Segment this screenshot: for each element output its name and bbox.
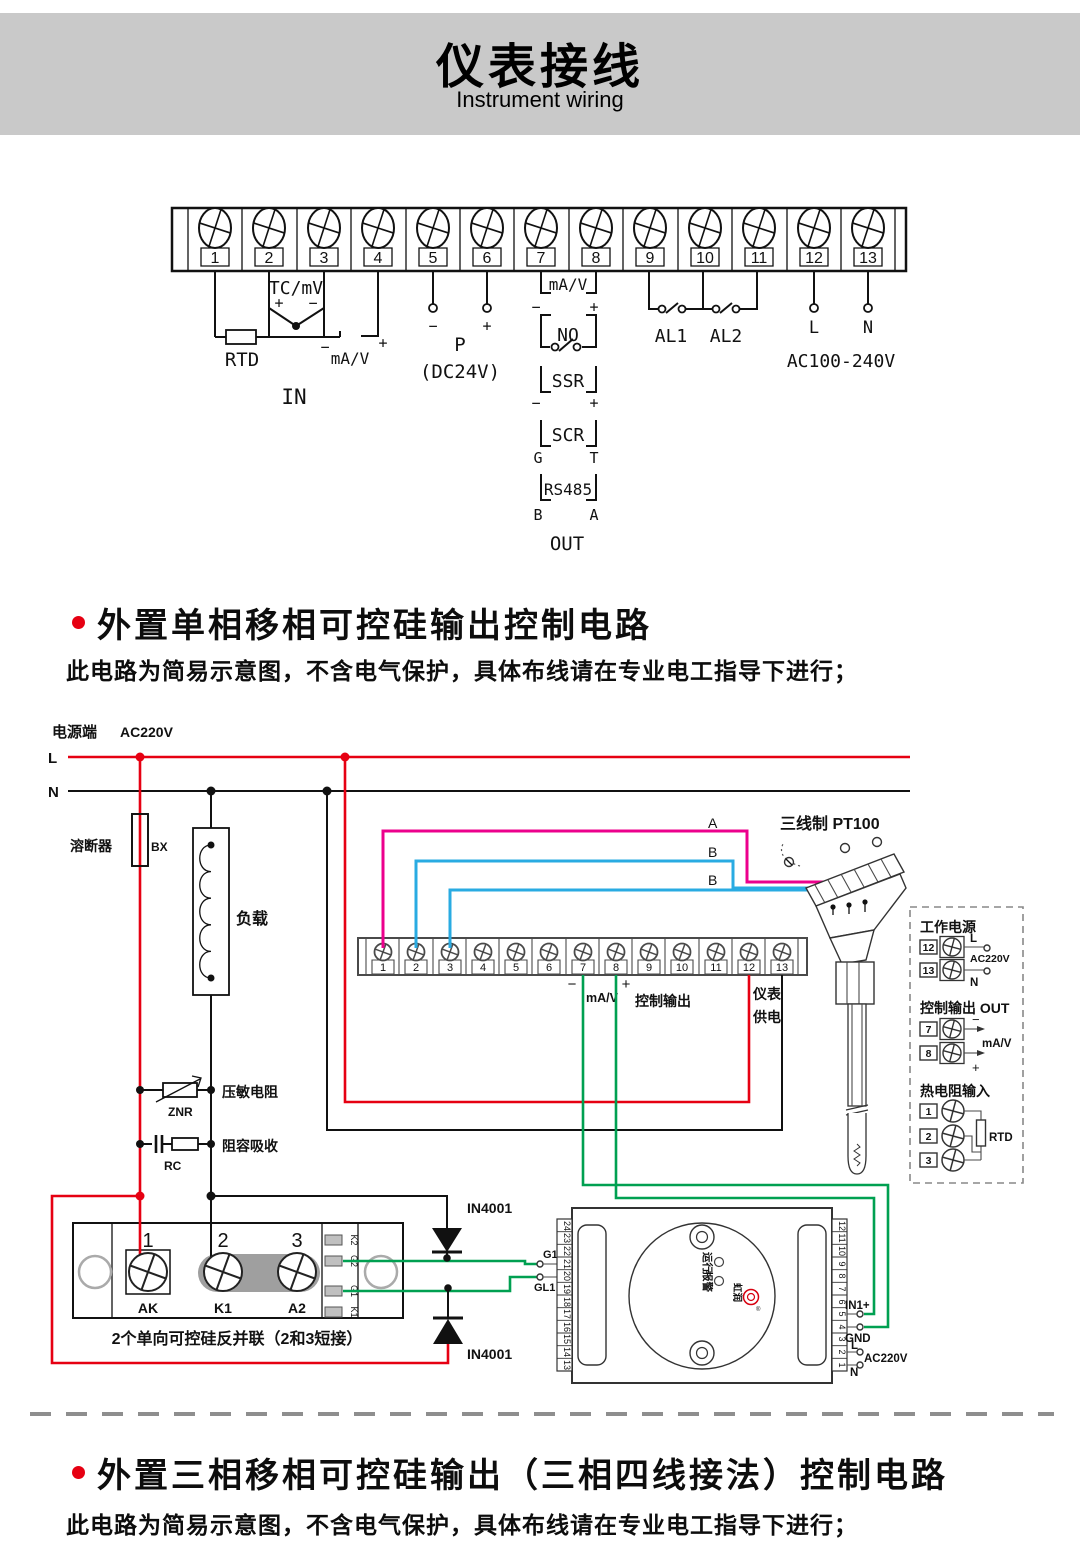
- panel-out-minus: −: [972, 1012, 980, 1027]
- panel-1: 1: [926, 1106, 932, 1118]
- terminal-number: 11: [751, 250, 768, 267]
- section2-note: 此电路为简易示意图，不含电气保护，具体布线请在专业电工指导下进行；: [66, 1506, 858, 1540]
- mid-terminal: 4: [480, 962, 486, 974]
- mav-in-label: mA/V: [331, 349, 370, 368]
- alarm-led-label: 报警: [701, 1271, 714, 1293]
- ac-range-label: AC100-240V: [787, 351, 896, 372]
- supply-label-2: 供电: [752, 1009, 781, 1025]
- out-plus: +: [589, 298, 598, 316]
- section1-title: 外置单相移相可控硅输出控制电路: [97, 598, 652, 647]
- panel-ac: AC220V: [970, 953, 1010, 965]
- fuse-code: BX: [151, 840, 168, 854]
- dc24v-label: (DC24V): [420, 361, 500, 383]
- mid-terminal: 8: [613, 962, 619, 974]
- module-n3: 3: [291, 1230, 302, 1252]
- tl: 15: [562, 1334, 572, 1344]
- bullet-icon: [72, 1466, 85, 1479]
- rtd-label: RTD: [225, 349, 259, 371]
- tr: 12: [837, 1221, 847, 1231]
- tr: 2: [837, 1349, 847, 1354]
- run-led: [715, 1258, 724, 1267]
- module-k1: K1: [214, 1300, 232, 1316]
- ssr-plus: +: [589, 394, 598, 412]
- panel-out-plus: +: [972, 1060, 980, 1075]
- fuse: 溶断器 BX: [70, 757, 168, 1196]
- tl: 19: [562, 1284, 572, 1294]
- mid-terminal: 3: [447, 962, 453, 974]
- terminal-number: 8: [592, 250, 601, 267]
- trigger-module: 24 23 22 21 20 19 18 17 16 15 14 13 12 1…: [557, 1208, 908, 1383]
- ctrl-mav: mA/V: [586, 991, 619, 1005]
- module-ak: AK: [138, 1300, 158, 1316]
- mav-out-label: mA/V: [549, 275, 588, 294]
- module-caption: 2个单向可控硅反并联（2和3短接）: [112, 1329, 363, 1348]
- no-label: NO: [557, 325, 579, 346]
- panel-8: 8: [926, 1048, 932, 1060]
- panel-out-title: 控制输出 OUT: [920, 1000, 1010, 1016]
- rs485-b: B: [533, 506, 542, 524]
- terminal-number: 13: [859, 250, 877, 267]
- mid-terminal: 5: [513, 962, 519, 974]
- rc-code: RC: [164, 1159, 182, 1173]
- alarm-relays: AL1 AL2: [649, 271, 757, 347]
- tr: 7: [837, 1286, 847, 1291]
- ctrl-minus: −: [568, 976, 577, 993]
- registered-mark: ®: [756, 1306, 761, 1313]
- panel-n: N: [970, 977, 978, 989]
- rc-label: 阻容吸收: [222, 1138, 279, 1154]
- terminal-number: 4: [374, 250, 383, 267]
- supply-label-1: 仪表: [752, 986, 782, 1002]
- section1-title-row: 外置单相移相可控硅输出控制电路: [72, 598, 652, 647]
- ssr-label: SSR: [552, 371, 585, 392]
- section-divider: [30, 1412, 1054, 1416]
- out-label: OUT: [550, 533, 584, 555]
- gl1-label: GL1: [534, 1282, 555, 1294]
- panel-power-title: 工作电源: [920, 919, 976, 935]
- mid-terminal: 2: [413, 962, 419, 974]
- tl: 18: [562, 1297, 572, 1307]
- g1-label: G1: [543, 1249, 558, 1261]
- in-label: IN: [281, 385, 306, 409]
- tab-k2: K2: [349, 1234, 359, 1245]
- ssr-minus: −: [531, 394, 540, 412]
- wire-a-label: A: [708, 815, 718, 831]
- mid-terminal: 10: [676, 962, 688, 974]
- rs485-a: A: [589, 506, 598, 524]
- mid-terminal: 1: [380, 962, 386, 974]
- mid-terminal: 13: [776, 962, 788, 974]
- in1-label: IN1+: [845, 1300, 870, 1312]
- power-side-label: 电源端: [52, 723, 97, 741]
- tl: 21: [562, 1259, 572, 1269]
- diode2-label: IN4001: [467, 1346, 512, 1362]
- tc-minus: −: [308, 294, 317, 312]
- section1-note: 此电路为简易示意图，不含电气保护，具体布线请在专业电工指导下进行；: [66, 652, 858, 686]
- scr-label: SCR: [552, 425, 585, 446]
- terminal-number: 5: [429, 250, 438, 267]
- mid-terminal: 7: [580, 962, 586, 974]
- power-rails: 电源端 AC220V L N: [48, 723, 910, 801]
- tl: 24: [562, 1221, 572, 1231]
- terminal-number: 2: [265, 250, 274, 267]
- tr: 9: [837, 1261, 847, 1266]
- header-banner: 仪表接线 Instrument wiring: [0, 13, 1080, 135]
- output-options: mA/V − + NO SSR − + SCR G T RS485 B A OU…: [531, 271, 598, 555]
- tl: 22: [562, 1246, 572, 1256]
- mains-input: L N AC100-240V: [787, 271, 896, 372]
- section2-title: 外置三相移相可控硅输出（三相四线接法）控制电路: [97, 1448, 948, 1497]
- p-minus: −: [428, 317, 437, 335]
- fuse-label: 溶断器: [70, 838, 113, 854]
- diode-bottom: IN4001: [433, 1284, 512, 1362]
- terminal-number: 7: [537, 250, 546, 267]
- panel-2: 2: [926, 1131, 932, 1143]
- tl: 20: [562, 1271, 572, 1281]
- tr: 11: [837, 1233, 847, 1242]
- trigger-n-label: N: [850, 1367, 858, 1379]
- panel-3: 3: [926, 1155, 932, 1167]
- page: 仪表接线 Instrument wiring 1 2: [0, 0, 1080, 1557]
- brand-name: 虹润: [731, 1283, 743, 1302]
- mid-terminal: 11: [710, 962, 721, 974]
- rs485-label: RS485: [544, 480, 592, 499]
- panel-13: 13: [923, 965, 935, 977]
- al2-label: AL2: [710, 326, 743, 347]
- pt100-sensor: 三线制 PT100: [780, 814, 906, 1174]
- terminal-number: 9: [646, 250, 655, 267]
- rc-snubber: 阻容吸收 RC: [136, 1135, 279, 1173]
- p-label: P: [454, 334, 465, 356]
- section2-title-row: 外置三相移相可控硅输出（三相四线接法）控制电路: [72, 1448, 948, 1497]
- panel-mav: mA/V: [982, 1038, 1012, 1050]
- module-n2: 2: [217, 1230, 228, 1252]
- tab-k1: K1: [349, 1306, 359, 1317]
- load-label: 负载: [236, 909, 268, 928]
- p-plus: +: [482, 317, 491, 335]
- trigger-ac-label: AC220V: [864, 1353, 908, 1365]
- tr: 8: [837, 1273, 847, 1278]
- tr: 10: [837, 1246, 847, 1256]
- pt100-wires: A B B: [383, 815, 864, 948]
- mid-terminal: 6: [546, 962, 552, 974]
- panel-l: L: [970, 933, 977, 945]
- varistor: 压敏电阻 ZNR: [136, 1076, 278, 1119]
- tl: 14: [562, 1347, 572, 1357]
- pt100-label: 三线制 PT100: [780, 814, 880, 833]
- scr-module: 1 2 3 AK K1 A2 K2 G2 G1 K1 2个单向可控硅反并联（2和…: [52, 1192, 448, 1364]
- varistor-label: 压敏电阻: [222, 1084, 278, 1100]
- mav-plus: +: [378, 334, 387, 352]
- panel-rtd-title: 热电阻输入: [920, 1083, 990, 1099]
- control-out-label: 控制输出: [635, 993, 691, 1009]
- tr: 1: [837, 1362, 847, 1367]
- diode1-label: IN4001: [467, 1200, 512, 1216]
- terminal-number: 10: [696, 250, 714, 267]
- wire-b2-label: B: [708, 872, 717, 888]
- diode-top: IN4001: [432, 1200, 512, 1262]
- alarm-led: [715, 1277, 724, 1286]
- tl: 17: [562, 1309, 572, 1319]
- tl: 13: [562, 1360, 572, 1370]
- ctrl-plus: +: [622, 976, 631, 993]
- terminal-number: 12: [805, 250, 823, 267]
- input-wiring: TC/mV + − RTD − mA/V + IN: [215, 271, 388, 409]
- terminal-strip-top: 1 2 3 4 5 6 7 8 9 10 11 12 13: [172, 204, 906, 271]
- terminal-number: 1: [211, 250, 220, 267]
- tr: 5: [837, 1311, 847, 1316]
- panel-rtd: RTD: [989, 1132, 1013, 1144]
- out-minus: −: [531, 298, 540, 316]
- power-voltage: AC220V: [120, 724, 174, 740]
- tc-plus: +: [274, 294, 283, 312]
- panel-12: 12: [923, 942, 935, 954]
- load: 负载: [193, 791, 268, 1196]
- al1-label: AL1: [655, 326, 688, 347]
- page-subtitle: Instrument wiring: [0, 87, 1080, 113]
- panel-7: 7: [926, 1024, 932, 1036]
- mav-minus: −: [320, 338, 329, 356]
- terminal-number: 3: [320, 250, 329, 267]
- n-label: N: [863, 318, 873, 338]
- mid-terminal: 9: [646, 962, 652, 974]
- l-label: L: [809, 318, 819, 338]
- trigger-l-label: L: [851, 1340, 858, 1352]
- side-panel: 工作电源 12 L AC220V 13 N 控制输出 OUT 7 − mA/V …: [910, 907, 1023, 1183]
- terminal-number: 6: [483, 250, 492, 267]
- wire-b1-label: B: [708, 844, 717, 860]
- varistor-code: ZNR: [168, 1105, 193, 1119]
- tl: 16: [562, 1322, 572, 1332]
- tl: 23: [562, 1233, 572, 1243]
- mid-terminal: 12: [743, 962, 755, 974]
- rail-l-label: L: [48, 750, 57, 767]
- scr-t: T: [589, 449, 598, 467]
- module-a2: A2: [288, 1300, 306, 1316]
- tr: 4: [837, 1324, 847, 1329]
- power-supply-24v: − + P (DC24V): [420, 271, 500, 383]
- module-n1: 1: [142, 1230, 153, 1252]
- instrument-terminal-diagram: 1 2 3 4 5 6 7 8 9 10 11 12 13 TC/mV + − …: [0, 140, 1080, 580]
- single-phase-scr-circuit: 电源端 AC220V L N 溶断器 BX 负载 压敏: [0, 700, 1080, 1410]
- scr-g: G: [533, 449, 542, 467]
- bullet-icon: [72, 616, 85, 629]
- rail-n-label: N: [48, 784, 59, 801]
